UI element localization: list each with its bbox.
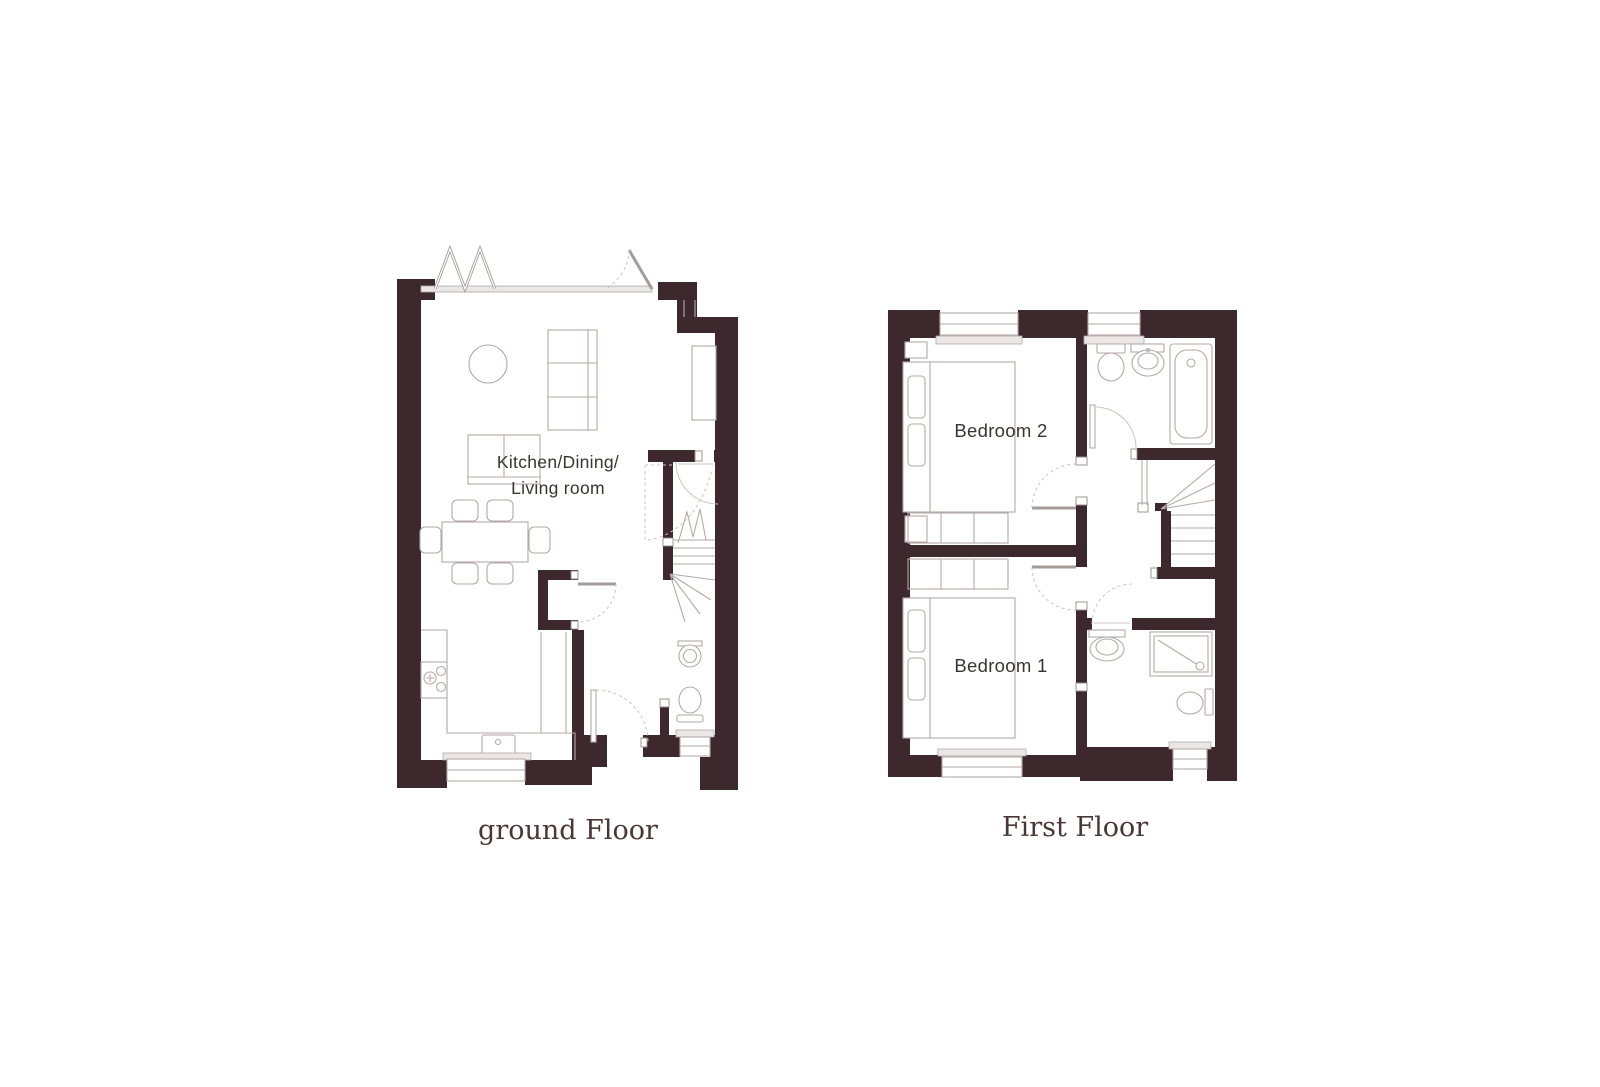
kitchen-window [443, 753, 531, 781]
bathroom-basin-icon [1131, 344, 1164, 376]
bedroom2-window [936, 313, 1022, 344]
stairs-icon [645, 465, 715, 622]
bifold-doors-icon [421, 249, 652, 292]
dining-table-icon [420, 500, 550, 584]
living-room-door-icon [578, 584, 616, 622]
entrance-door-icon [607, 250, 652, 289]
bathroom-door-icon [1090, 405, 1136, 448]
round-table-icon [469, 345, 507, 383]
shower-icon [1150, 632, 1212, 676]
ensuite-door-icon [1092, 584, 1132, 624]
room-label-bedroom1: Bedroom 1 [954, 652, 1047, 680]
hall-door-icon [676, 462, 718, 504]
ground-floor-caption: ground Floor [478, 815, 658, 846]
room-label-line1: Kitchen/Dining/ [497, 452, 619, 472]
first-floor-caption: First Floor [1002, 812, 1148, 843]
wc-window [676, 730, 714, 756]
ground-floor-plan [380, 230, 750, 805]
hob-icon [421, 662, 447, 698]
wc-door-icon [591, 690, 648, 742]
wc-toilet-icon [677, 687, 703, 722]
ensuite-basin-icon [1089, 630, 1125, 661]
sofa-icon [548, 330, 597, 430]
bathtub-icon [1170, 344, 1212, 444]
bedroom1-door-icon [1032, 567, 1076, 610]
radiator [692, 346, 716, 420]
room-label-line2: Living room [511, 478, 605, 498]
bedroom1-window [938, 749, 1026, 777]
stairs-icon [1142, 460, 1215, 554]
ensuite-window [1169, 742, 1211, 769]
bathroom-toilet-icon [1097, 344, 1125, 381]
wc-basin-icon [678, 641, 702, 667]
bedroom2-door-icon [1032, 464, 1076, 508]
bathroom-window [1084, 313, 1144, 344]
floorplan-canvas: Kitchen/Dining/ Living room Bedroom 2 Be… [0, 0, 1600, 1087]
ensuite-toilet-icon [1177, 689, 1213, 715]
room-label-kitchen-dining-living: Kitchen/Dining/ Living room [497, 449, 619, 502]
wardrobe-bedroom1-icon [908, 559, 1008, 589]
room-label-bedroom2: Bedroom 2 [954, 417, 1047, 445]
first-floor-plan [870, 295, 1250, 795]
